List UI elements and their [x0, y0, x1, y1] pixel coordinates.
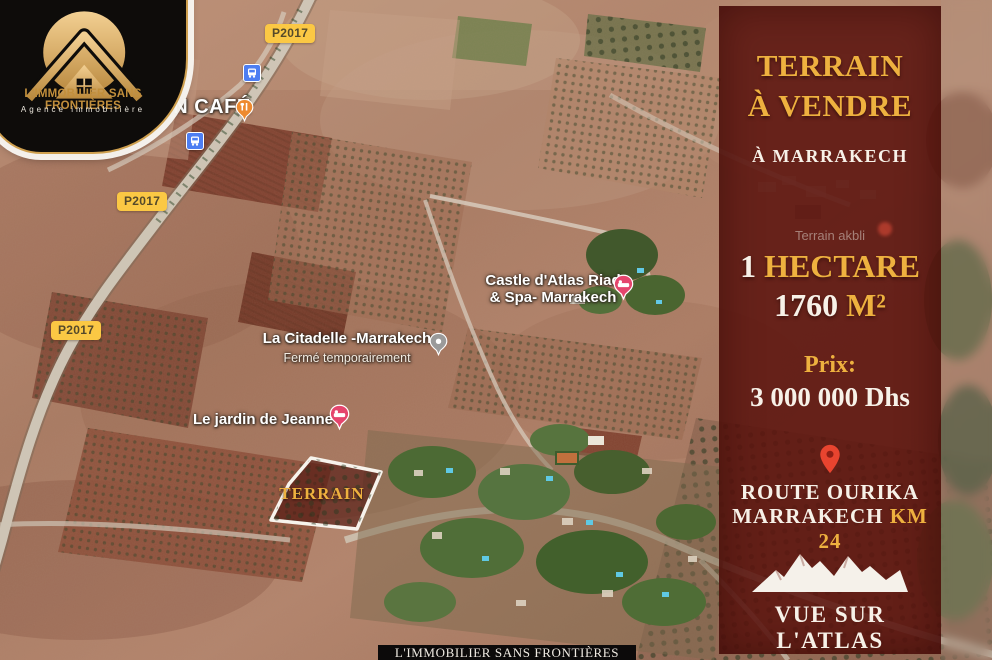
area-value: 1 — [740, 248, 756, 284]
bus-stop-icon — [186, 132, 204, 150]
offer-panel: TERRAIN À VENDRE À MARRAKECH 1 HECTARE 1… — [719, 6, 941, 654]
poi-status-citadelle: Fermé temporairement — [283, 351, 410, 365]
hotel-pin-icon — [613, 274, 634, 306]
closed-place-pin-icon — [429, 332, 448, 362]
poi-label-castle-atlas: Castle d'Atlas Riad & Spa- Marrakech — [485, 272, 620, 306]
poi-label-castle-line1: Castle d'Atlas Riad — [485, 272, 620, 289]
area-unit: HECTARE — [764, 248, 920, 284]
road-badge-p2017-low: P2017 — [51, 321, 101, 340]
poi-label-castle-line2: & Spa- Marrakech — [485, 289, 620, 306]
terrain-plot-label: TERRAIN — [279, 484, 364, 504]
area-label-terrain-akbli: Terrain akbli — [795, 228, 865, 243]
footer-bar: L'IMMOBILIER SANS FRONTIÈRES — [378, 645, 636, 660]
panel-subtitle: À MARRAKECH — [719, 146, 941, 167]
location-line1: ROUTE OURIKA — [719, 480, 941, 505]
location-city: MARRAKECH — [732, 504, 883, 528]
footer-agency-name: L'IMMOBILIER SANS FRONTIÈRES — [395, 645, 619, 660]
bus-stop-icon — [243, 64, 261, 82]
hotel-pin-icon — [329, 404, 350, 436]
poi-label-citadelle: La Citadelle -Marrakech — [263, 330, 431, 347]
red-dot-pin-icon — [878, 222, 892, 236]
view-label: VUE SUR L'ATLAS — [719, 602, 941, 654]
panel-title-line1: TERRAIN — [719, 48, 941, 84]
agency-tagline: Agence immobilière — [0, 105, 178, 114]
panel-area-line: 1 HECTARE — [719, 248, 941, 285]
restaurant-pin-icon — [235, 98, 254, 128]
road-badge-p2017-top: P2017 — [265, 24, 315, 43]
mountains-icon — [719, 546, 941, 599]
location-pin-icon — [719, 444, 941, 479]
road-badge-p2017-mid: P2017 — [117, 192, 167, 211]
size-unit: M² — [846, 287, 886, 323]
real-estate-flyer: P2017 P2017 P2017 DAN CAFÉ Castle d'Atla… — [0, 0, 992, 660]
price-value: 3 000 000 Dhs — [719, 382, 941, 413]
price-label: Prix: — [719, 352, 941, 379]
panel-size-line: 1760 M² — [719, 287, 941, 324]
blurred-map-edge — [941, 0, 992, 660]
poi-label-jardin-jeanne: Le jardin de Jeanne — [193, 411, 333, 428]
panel-title-line2: À VENDRE — [719, 88, 941, 124]
size-value: 1760 — [774, 287, 838, 323]
